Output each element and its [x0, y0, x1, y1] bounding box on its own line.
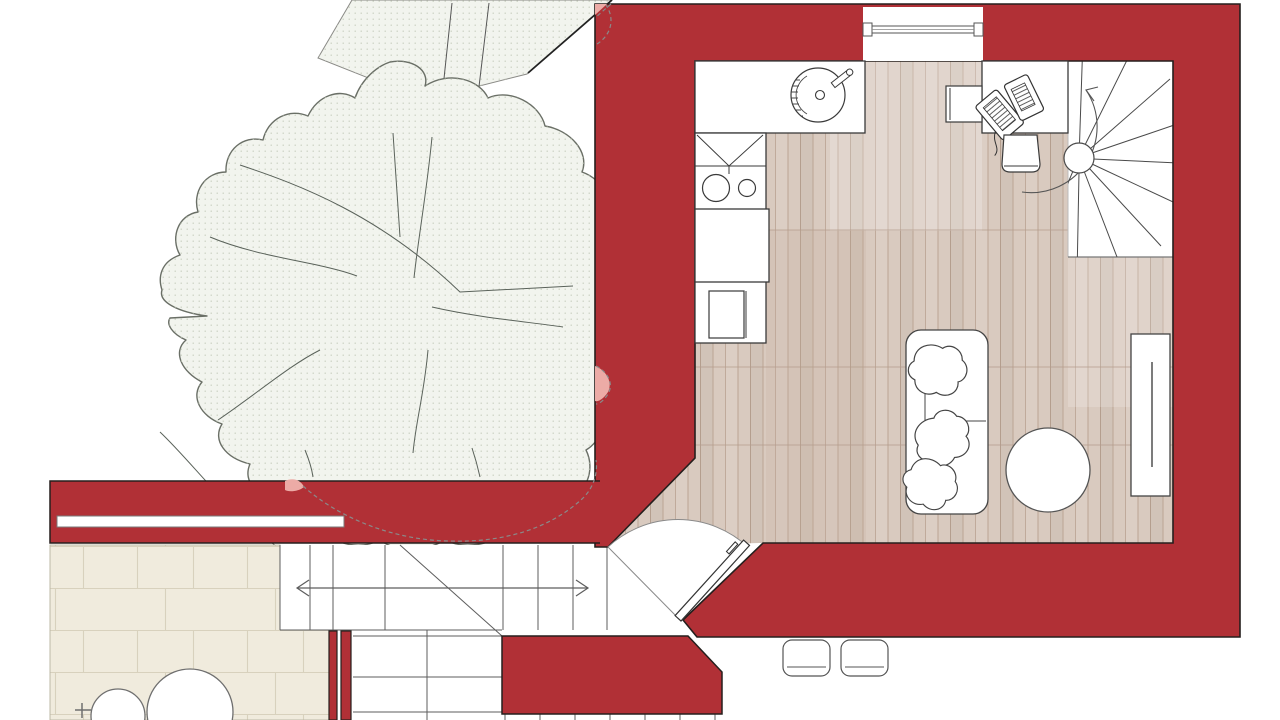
top-window	[863, 7, 983, 61]
floor-plan-drawing	[0, 0, 1280, 720]
partition-wall	[329, 631, 351, 720]
base-cabinet	[695, 209, 769, 282]
floor-plan-canvas	[0, 0, 1280, 720]
sideboard	[1131, 334, 1170, 496]
sofa	[894, 330, 988, 520]
stair-block	[502, 636, 722, 714]
lower-landing	[353, 630, 502, 720]
side-stool	[946, 86, 982, 122]
garden-wall	[50, 481, 600, 543]
coffee-table	[1006, 428, 1090, 512]
outdoor-stools	[783, 640, 888, 676]
outdoor-stool	[783, 640, 830, 676]
appliance	[709, 291, 746, 338]
outdoor-stool	[841, 640, 888, 676]
stair-center-column	[1064, 143, 1094, 173]
desk-chair	[1002, 135, 1040, 172]
lower-stair-treads	[505, 714, 715, 720]
wall-slot-window	[57, 516, 344, 527]
